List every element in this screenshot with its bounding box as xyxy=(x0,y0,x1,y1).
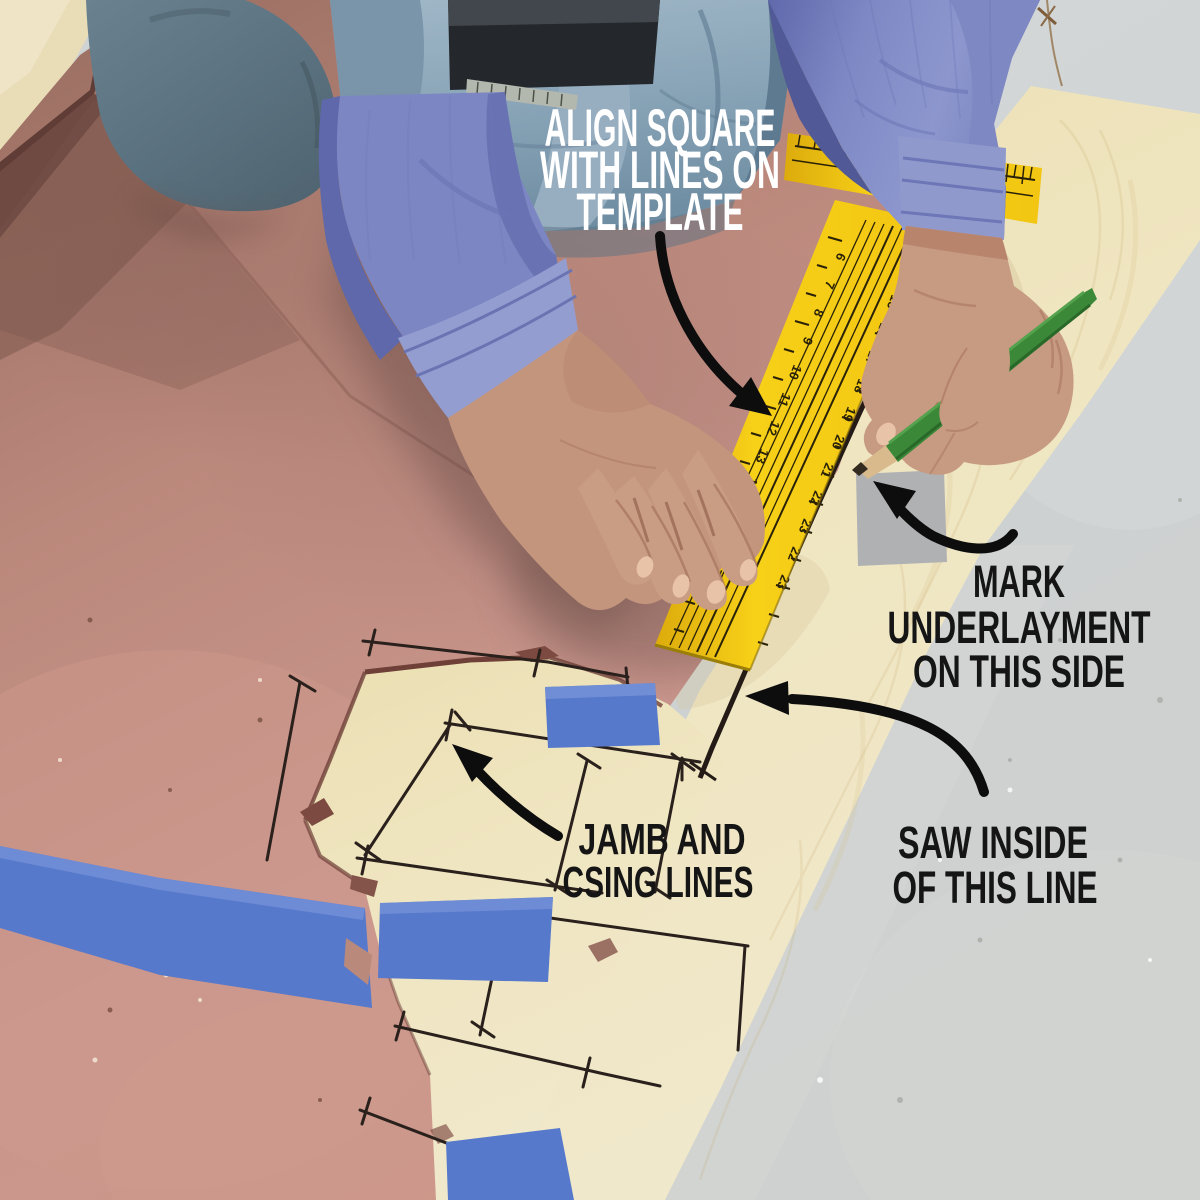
svg-text:MARK: MARK xyxy=(973,556,1065,607)
svg-text:SAW INSIDE: SAW INSIDE xyxy=(898,817,1088,868)
svg-text:OF THIS LINE: OF THIS LINE xyxy=(893,862,1098,913)
svg-text:JAMB AND: JAMB AND xyxy=(579,815,746,864)
svg-text:CSING LINES: CSING LINES xyxy=(563,858,754,907)
svg-text:TEMPLATE: TEMPLATE xyxy=(577,183,744,242)
svg-text:ON THIS SIDE: ON THIS SIDE xyxy=(913,646,1125,697)
